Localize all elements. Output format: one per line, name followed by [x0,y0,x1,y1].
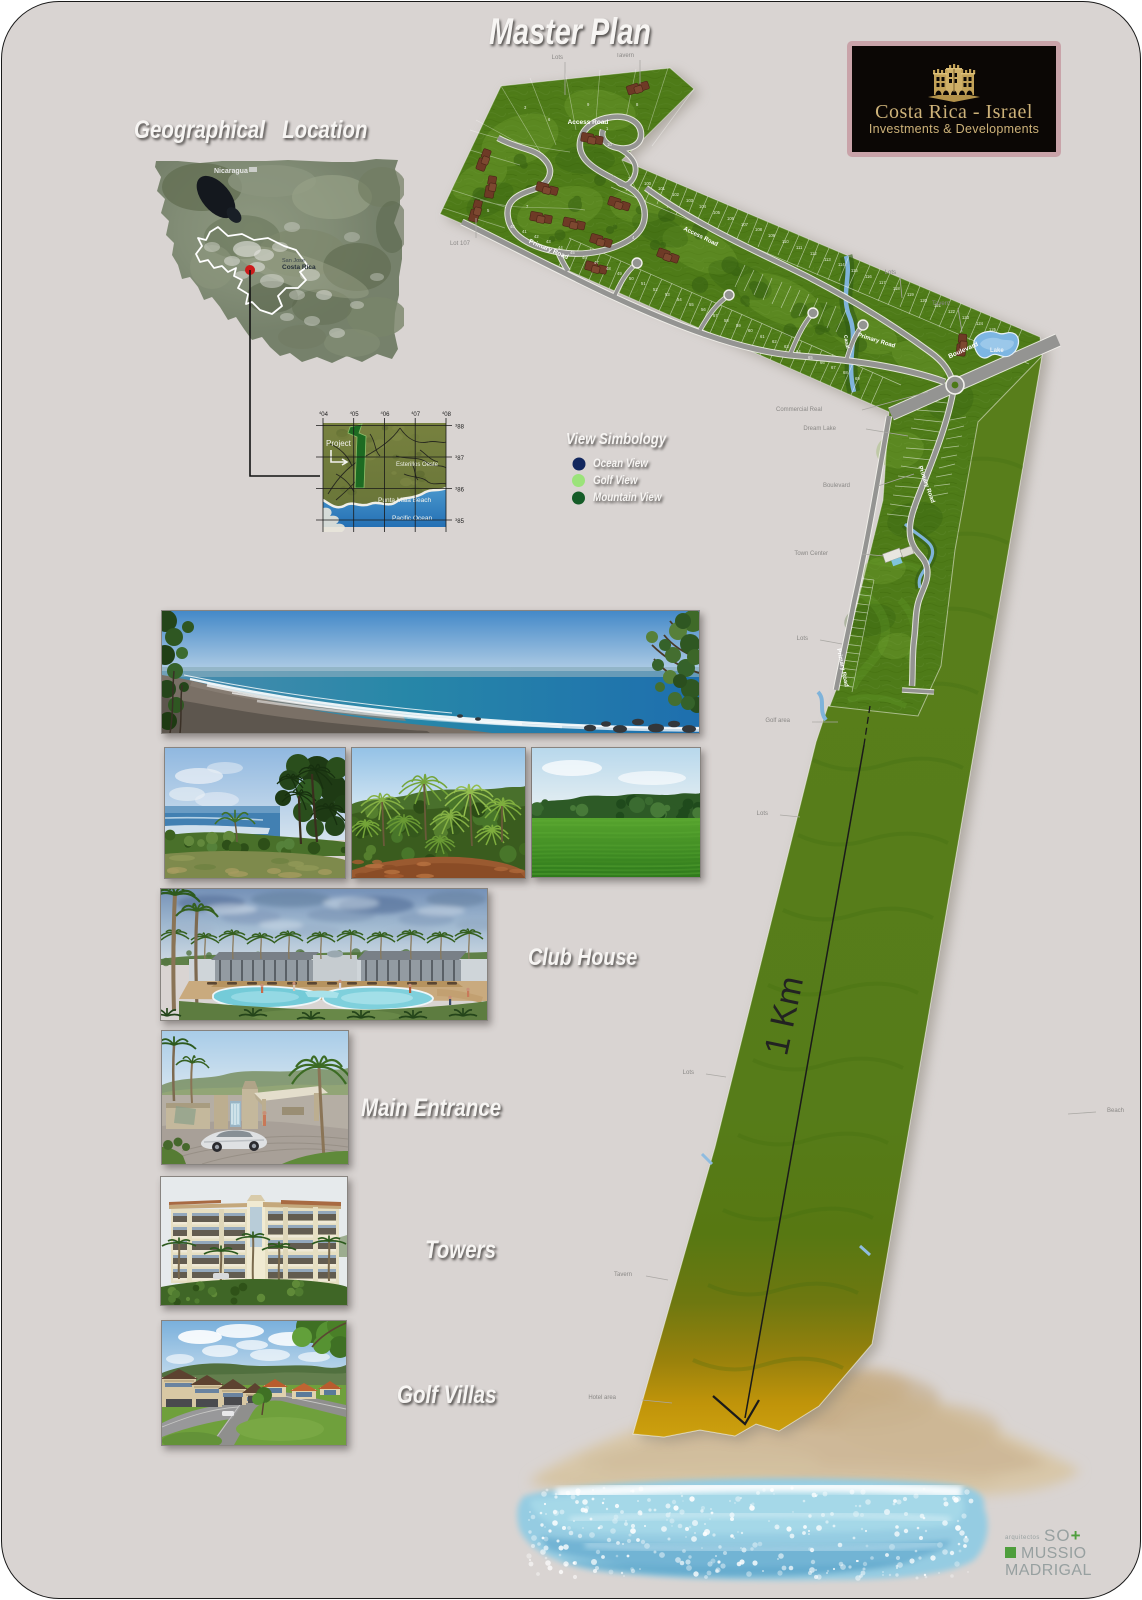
svg-text:104: 104 [699,204,707,209]
svg-text:120: 120 [920,298,928,303]
svg-text:69: 69 [855,376,860,381]
svg-text:116: 116 [865,274,872,279]
svg-text:47: 47 [594,260,599,265]
svg-text:Lots: Lots [552,55,563,61]
svg-text:48: 48 [606,266,611,271]
svg-text:Tavern: Tavern [932,301,950,307]
svg-text:41: 41 [522,229,527,234]
svg-text:45: 45 [570,250,575,255]
svg-text:100: 100 [644,181,652,186]
svg-text:Boulevard: Boulevard [823,483,850,489]
svg-text:56: 56 [701,307,706,312]
svg-text:43: 43 [546,239,551,244]
svg-text:115: 115 [851,268,858,273]
svg-text:53: 53 [665,292,670,297]
svg-text:118: 118 [893,286,900,291]
svg-text:55: 55 [689,302,694,307]
svg-text:103: 103 [686,198,694,203]
svg-text:61: 61 [760,334,765,339]
svg-text:107: 107 [741,222,749,227]
svg-text:109: 109 [768,233,776,238]
svg-text:58: 58 [724,318,729,323]
svg-text:106: 106 [727,216,735,221]
svg-text:50: 50 [629,276,634,281]
svg-text:42: 42 [534,234,539,239]
svg-text:Town Center: Town Center [794,551,828,557]
svg-text:122: 122 [948,309,956,314]
svg-text:Tavern: Tavern [614,1272,632,1278]
svg-text:52: 52 [653,287,658,292]
svg-text:Hotel area: Hotel area [588,1395,616,1401]
svg-text:60: 60 [748,328,753,333]
svg-text:Beach: Beach [1107,1108,1124,1114]
svg-text:57: 57 [713,313,718,318]
svg-text:59: 59 [736,323,741,328]
svg-text:123: 123 [962,315,970,320]
svg-text:62: 62 [772,339,777,344]
svg-text:Lots: Lots [757,811,768,817]
svg-text:111: 111 [796,245,803,250]
svg-text:Commercial Real: Commercial Real [776,407,822,413]
svg-text:101: 101 [658,186,666,191]
svg-text:Lake: Lake [990,348,1004,354]
svg-text:117: 117 [879,280,886,285]
svg-text:68: 68 [843,370,848,375]
svg-text:Lot 107: Lot 107 [450,241,471,247]
svg-text:51: 51 [641,281,646,286]
svg-text:Lots: Lots [797,636,808,642]
svg-text:Lots: Lots [683,1070,694,1076]
svg-text:65: 65 [808,355,813,360]
svg-text:10: 10 [607,142,612,147]
svg-text:64: 64 [796,349,801,354]
svg-text:Tavern: Tavern [616,53,634,59]
svg-text:102: 102 [672,192,680,197]
svg-text:63: 63 [784,344,789,349]
svg-text:54: 54 [677,297,682,302]
svg-text:114: 114 [838,262,845,267]
svg-text:113: 113 [824,257,831,262]
svg-text:66: 66 [820,360,825,365]
svg-text:Dream Lake: Dream Lake [803,426,836,432]
svg-text:40: 40 [510,224,515,229]
svg-text:Lots: Lots [885,270,896,276]
svg-text:Access Road: Access Road [568,119,609,126]
svg-text:108: 108 [755,227,763,232]
svg-text:Golf area: Golf area [765,718,790,724]
svg-text:105: 105 [713,210,721,215]
svg-text:125: 125 [989,327,997,332]
svg-text:124: 124 [976,321,984,326]
svg-text:119: 119 [907,292,914,297]
svg-text:110: 110 [782,239,789,244]
svg-text:67: 67 [831,365,836,370]
svg-text:112: 112 [810,251,817,256]
svg-text:49: 49 [617,271,622,276]
svg-text:46: 46 [582,255,587,260]
